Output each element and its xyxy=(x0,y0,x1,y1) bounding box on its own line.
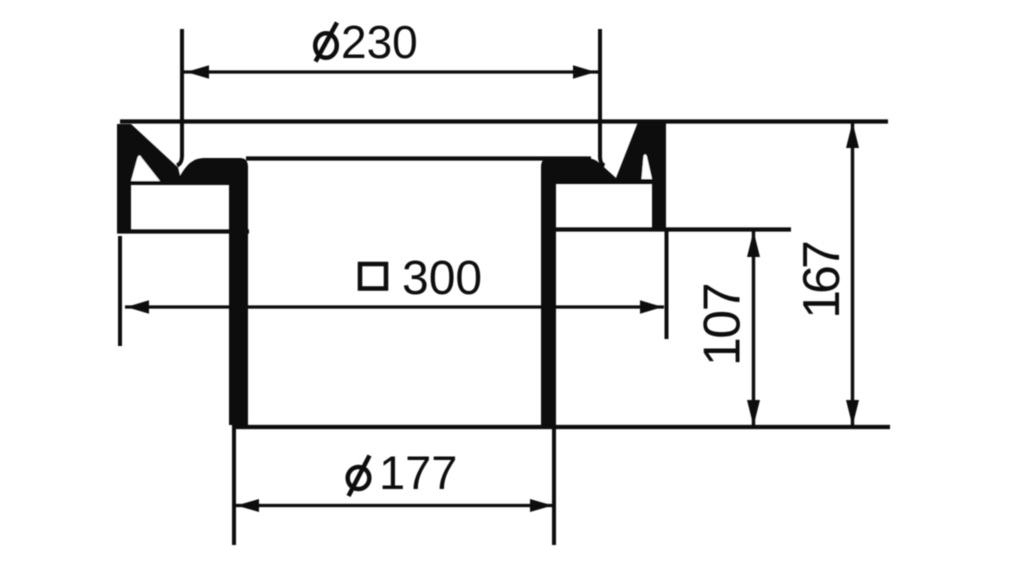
svg-text:107: 107 xyxy=(694,284,752,366)
svg-text:177: 177 xyxy=(379,446,457,499)
svg-text:230: 230 xyxy=(341,16,418,68)
svg-text:167: 167 xyxy=(793,242,851,319)
svg-text:300: 300 xyxy=(402,252,482,305)
